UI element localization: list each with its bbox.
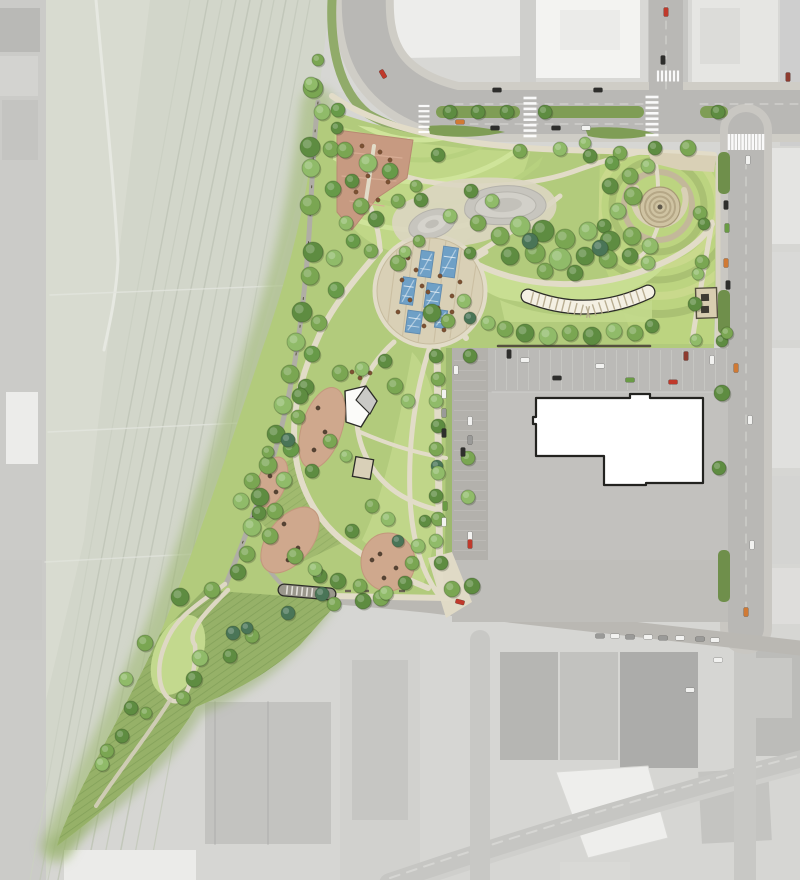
car bbox=[442, 429, 447, 438]
cafe-tables bbox=[408, 298, 412, 302]
cafe-tables bbox=[388, 158, 392, 162]
cafe-tables bbox=[366, 174, 370, 178]
car bbox=[744, 608, 749, 617]
cafe-tables bbox=[438, 274, 442, 278]
car bbox=[714, 658, 723, 663]
car bbox=[442, 409, 447, 418]
car bbox=[684, 352, 689, 361]
cafe-tables bbox=[450, 294, 454, 298]
cafe-tables bbox=[350, 370, 354, 374]
car bbox=[454, 366, 459, 375]
sw-white-warehouse bbox=[64, 850, 196, 880]
car bbox=[669, 380, 678, 385]
play-equipment bbox=[378, 552, 382, 556]
play-equipment bbox=[394, 566, 398, 570]
car bbox=[507, 350, 512, 359]
car bbox=[493, 88, 502, 93]
play-equipment bbox=[316, 406, 320, 410]
car bbox=[552, 126, 561, 131]
se-warehouse-1 bbox=[500, 652, 558, 760]
play-equipment bbox=[312, 448, 316, 452]
cafe-tables bbox=[354, 190, 358, 194]
car bbox=[443, 502, 448, 511]
east-block-3 bbox=[772, 348, 800, 468]
car bbox=[626, 378, 635, 383]
cafe-tables bbox=[458, 280, 462, 284]
car bbox=[710, 356, 715, 365]
car bbox=[611, 634, 620, 639]
car bbox=[582, 126, 591, 131]
car bbox=[521, 358, 530, 363]
car bbox=[442, 390, 447, 399]
car bbox=[711, 638, 720, 643]
south-path-benches bbox=[345, 590, 351, 592]
cafe-tables bbox=[400, 278, 404, 282]
car bbox=[491, 126, 500, 131]
cafe-tables bbox=[376, 198, 380, 202]
car bbox=[468, 532, 473, 541]
car bbox=[596, 364, 605, 369]
car bbox=[596, 634, 605, 639]
car bbox=[468, 540, 473, 549]
play-structure bbox=[352, 457, 373, 480]
cafe-tables bbox=[414, 268, 418, 272]
car bbox=[725, 224, 730, 233]
car bbox=[594, 88, 603, 93]
cafe-tables bbox=[420, 284, 424, 288]
play-equipment bbox=[274, 490, 278, 494]
cafe-tables bbox=[426, 290, 430, 294]
play-equipment bbox=[323, 430, 327, 434]
play-equipment bbox=[370, 558, 374, 562]
car bbox=[644, 635, 653, 640]
car bbox=[626, 635, 635, 640]
car bbox=[676, 636, 685, 641]
car bbox=[686, 688, 695, 693]
car bbox=[696, 637, 705, 642]
car bbox=[734, 364, 739, 373]
play-equipment bbox=[282, 522, 286, 526]
car bbox=[724, 259, 729, 268]
play-equipment bbox=[382, 576, 386, 580]
cafe-tables bbox=[360, 144, 364, 148]
car bbox=[468, 436, 473, 445]
east-block-2 bbox=[768, 252, 800, 340]
splash-pad-pools bbox=[405, 310, 423, 334]
cafe-tables bbox=[442, 328, 446, 332]
car bbox=[442, 518, 447, 527]
car bbox=[746, 156, 751, 165]
se-warehouse-3 bbox=[620, 652, 698, 768]
car bbox=[664, 8, 669, 17]
cafe-tables bbox=[422, 324, 426, 328]
car bbox=[461, 448, 466, 457]
cafe-tables bbox=[396, 310, 400, 314]
cafe-tables bbox=[378, 150, 382, 154]
car bbox=[659, 636, 668, 641]
cafe-tables bbox=[450, 310, 454, 314]
median-center bbox=[540, 106, 644, 118]
car bbox=[786, 73, 791, 82]
car bbox=[661, 56, 666, 65]
car bbox=[724, 201, 729, 210]
car bbox=[553, 376, 562, 381]
car bbox=[456, 120, 465, 125]
site-plan-svg bbox=[0, 0, 800, 880]
east-verge-3 bbox=[718, 550, 730, 602]
se-warehouse-2 bbox=[560, 652, 618, 760]
cafe-tables bbox=[386, 180, 390, 184]
car bbox=[750, 541, 755, 550]
car bbox=[748, 416, 753, 425]
car bbox=[726, 281, 731, 290]
screenshot-root bbox=[0, 0, 800, 880]
car bbox=[468, 417, 473, 426]
east-verge-1 bbox=[718, 152, 730, 194]
